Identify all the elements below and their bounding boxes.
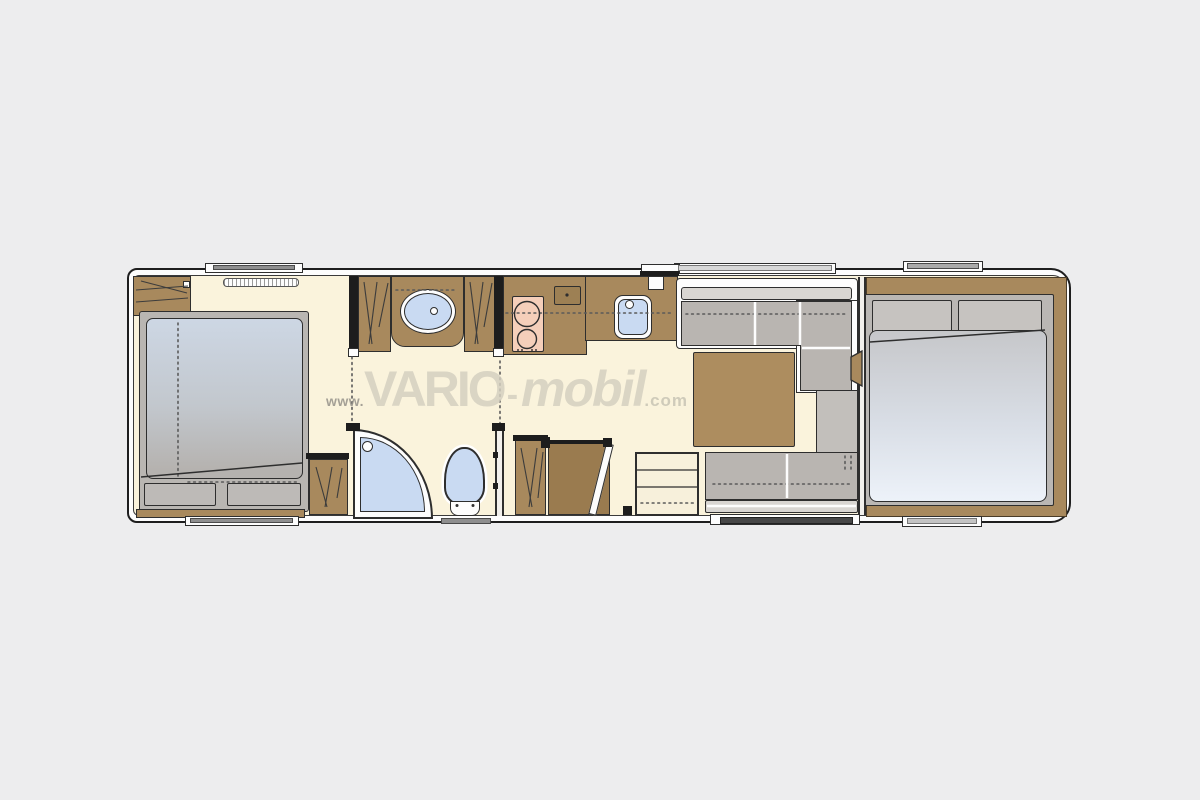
bed-rear-pillow-left bbox=[144, 483, 216, 506]
shower-drain bbox=[362, 441, 373, 452]
window-lounge-glass bbox=[678, 265, 832, 271]
kitchen-end-pillar-top bbox=[641, 264, 680, 273]
bed-rear-pillow-right bbox=[227, 483, 301, 506]
bathroom-wall-left bbox=[349, 276, 358, 352]
wardrobe-vanity-right bbox=[464, 276, 495, 352]
skirt-hatch-rear-door bbox=[190, 518, 293, 523]
kitchen-faucet bbox=[625, 300, 634, 309]
bathroom-door-cap-left bbox=[348, 348, 359, 357]
bed-front-mattress bbox=[869, 330, 1047, 502]
sofa-side-unit bbox=[816, 390, 858, 453]
sofa-backrest bbox=[681, 287, 852, 300]
toilet-bowl bbox=[444, 447, 485, 505]
window-rear-bedroom-glass bbox=[213, 265, 295, 270]
watermark: www. VARIO - mobil .com bbox=[326, 360, 806, 424]
bed-front-pillow-right bbox=[958, 300, 1042, 333]
skirt-hatch-front-door bbox=[907, 518, 977, 524]
toilet-base bbox=[450, 501, 480, 516]
watermark-tld: .com bbox=[644, 391, 688, 411]
washbasin-drain bbox=[430, 307, 438, 315]
watermark-brand: VARIO bbox=[364, 360, 504, 418]
bench-sofa-backrest bbox=[705, 500, 858, 513]
wardrobe-entry bbox=[515, 440, 546, 515]
bathroom-door-cap-right bbox=[493, 348, 504, 357]
bathroom-wall-bottom bbox=[495, 428, 504, 516]
skirt-hatch-mid bbox=[441, 518, 491, 524]
sofa-corner-seat bbox=[800, 301, 852, 391]
bedroom-partition-wall bbox=[858, 277, 866, 515]
watermark-brand2: mobil bbox=[521, 360, 644, 418]
window-front-bedroom-glass bbox=[907, 263, 979, 269]
watermark-www: www. bbox=[326, 393, 364, 409]
entry-steps bbox=[635, 452, 699, 516]
wardrobe-vanity-left bbox=[358, 276, 391, 352]
rear-window-sill bbox=[223, 278, 299, 287]
bed-rear-mattress bbox=[146, 318, 303, 479]
bench-sofa-seats bbox=[705, 452, 858, 500]
wardrobe-rear-bottom bbox=[309, 459, 348, 515]
watermark-dash: - bbox=[507, 376, 518, 415]
cooktop bbox=[512, 296, 544, 352]
wardrobe-handle bbox=[183, 281, 190, 288]
bathroom-wall-right bbox=[494, 276, 503, 352]
flush-cover bbox=[554, 286, 581, 305]
entry-step-exterior bbox=[720, 517, 853, 524]
floor-plan-page: { "watermark": { "www": "www.", "brand":… bbox=[0, 0, 1200, 800]
kitchen-end-pillar bbox=[648, 276, 664, 290]
bed-front-pillow-left bbox=[872, 300, 952, 333]
washbasin bbox=[404, 293, 452, 330]
